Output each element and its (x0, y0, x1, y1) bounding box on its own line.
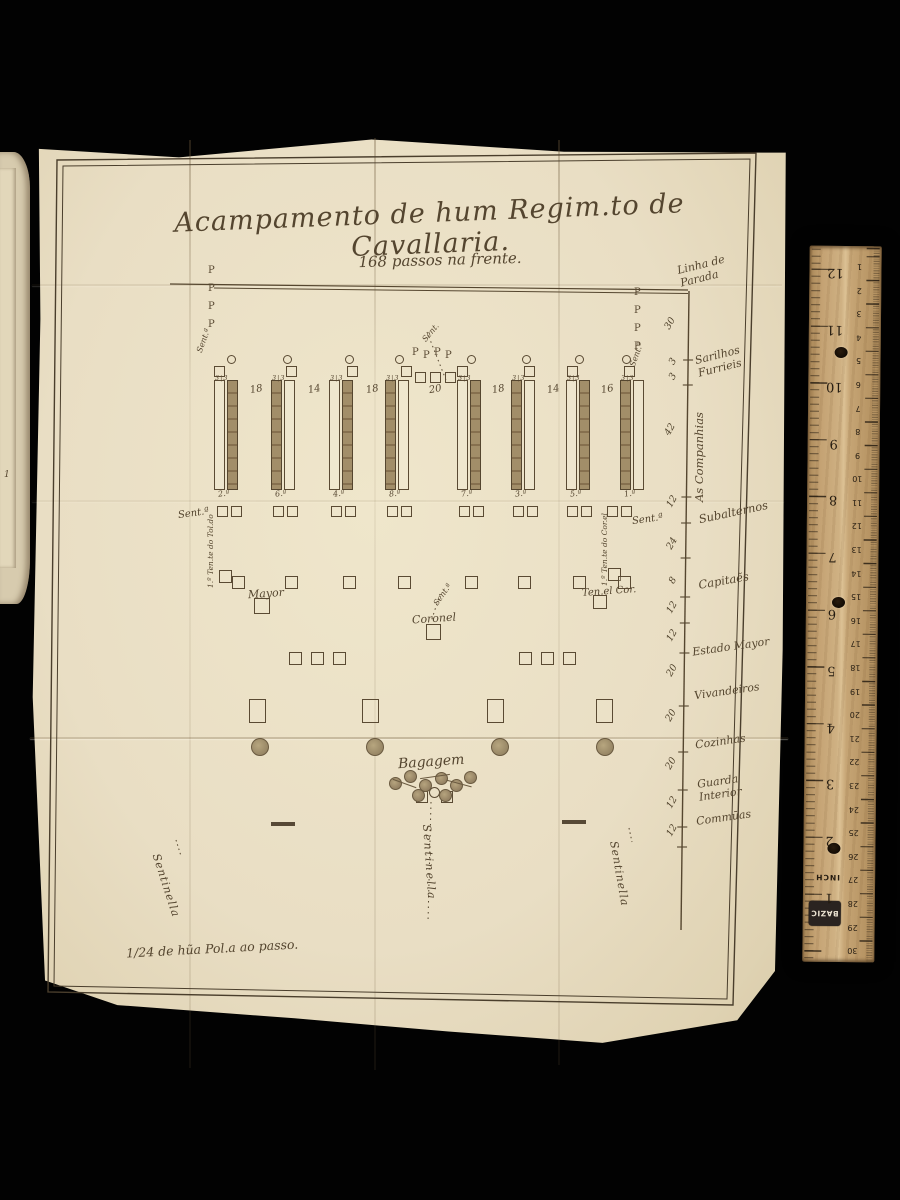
company-tent-line (284, 380, 295, 490)
ruler-cm-number: 26 (846, 852, 860, 861)
ruler-cm-number: 16 (849, 616, 863, 625)
picket-circle (283, 355, 292, 364)
picket-circle (575, 355, 584, 364)
ruler-inch-number: 3 (821, 776, 839, 791)
capitao-tent (398, 576, 411, 589)
ruler-cm-number: 12 (850, 522, 864, 531)
flag-picket-P: P (634, 323, 641, 334)
ruler-inch-number: 9 (825, 435, 843, 450)
picket-circle (522, 355, 531, 364)
cozinha-circle (596, 738, 614, 756)
ruler-inch-number: 5 (822, 663, 840, 678)
ruler-cm-number: 10 (850, 474, 864, 483)
ruler-cm-number: 25 (847, 828, 861, 837)
baggage-wagon (464, 771, 477, 784)
picket-circle (345, 355, 354, 364)
furriel-tent (401, 366, 412, 377)
furriel-tent (347, 366, 358, 377)
sarilho-mark: 3|3 (330, 374, 343, 382)
ruler-cm-number: 6 (851, 380, 865, 389)
furriel-tent (624, 366, 635, 377)
guarda-interior-post (562, 820, 586, 824)
picket-circle (467, 355, 476, 364)
vertical-fold (374, 138, 376, 1070)
ruler-inch-number: 7 (823, 549, 841, 564)
ruler-cm-number: 29 (846, 923, 860, 932)
subaltern-tent (513, 506, 524, 517)
company-tent-line (524, 380, 535, 490)
company-id: 3.ª (514, 488, 527, 499)
company-tent-line (633, 380, 644, 490)
ruler-cm-number: 18 (848, 663, 862, 672)
ruler-cm-number: 13 (850, 545, 864, 554)
front-width-number: 18 (365, 383, 379, 396)
front-width-number: 14 (307, 383, 321, 396)
picket-circle (227, 355, 236, 364)
baggage-wagon (439, 789, 452, 802)
front-width-number: 18 (491, 383, 505, 396)
capitao-tent (232, 576, 245, 589)
flag-picket-P: P (634, 287, 641, 298)
ruler-cm-number: 21 (848, 734, 862, 743)
subaltern-tent (459, 506, 470, 517)
company-horse-line (329, 380, 340, 490)
subaltern-tent (567, 506, 578, 517)
capitao-tent (518, 576, 531, 589)
company-id: 4.ª (332, 488, 345, 499)
company-id: 7.ª (460, 488, 473, 499)
wooden-ruler: INCH BAZIC 12345678910111212345678910111… (802, 246, 881, 963)
ruler-cm-number: 5 (851, 356, 865, 365)
flag-picket-P: P (208, 319, 215, 330)
subaltern-tent (473, 506, 484, 517)
book-page-edge-inner (0, 168, 16, 568)
mayor-tent (254, 598, 270, 614)
furriel-tent (457, 366, 468, 377)
company-horse-line (566, 380, 577, 490)
front-width-number: 20 (428, 383, 442, 396)
ruler-hole (835, 347, 848, 358)
company-horse-line (620, 380, 631, 490)
ruler-cm-number: 14 (849, 569, 863, 578)
ruler-inch-number: 10 (825, 379, 843, 394)
subaltern-tent (287, 506, 298, 517)
estado-mayor-tent (519, 652, 532, 665)
photograph-of-foldout-plate: 1 Acampamento de hum Regim.to de Cavalla… (0, 0, 900, 1200)
subaltern-tent (387, 506, 398, 517)
flag-picket-P: P (208, 301, 215, 312)
subaltern-tent (607, 506, 618, 517)
company-id: 8.ª (388, 488, 401, 499)
front-width-number: 18 (249, 383, 263, 396)
ruler-cm-number: 19 (848, 687, 862, 696)
company-tent-line (470, 380, 481, 490)
flag-picket-P: P (634, 341, 641, 352)
flag-picket-P: P (423, 350, 430, 361)
company-horse-line (214, 380, 225, 490)
vivandeiro-tent (249, 699, 266, 723)
furriel-tent (286, 366, 297, 377)
company-id: 1.ª (623, 488, 636, 499)
company-tent-line (398, 380, 409, 490)
ruler-cm-number: 27 (846, 875, 860, 884)
flag-picket-P: P (434, 347, 441, 358)
company-tent-line (227, 380, 238, 490)
left-officer-tent (219, 570, 232, 583)
vertical-fold (558, 140, 560, 1065)
ruler-cm-number: 3 (852, 309, 866, 318)
front-width-number: 16 (600, 383, 614, 396)
ruler-cm-number: 1 (852, 262, 866, 271)
company-horse-line (457, 380, 468, 490)
ruler-cm-number: 4 (852, 333, 866, 342)
ruler-inch-number: 12 (826, 265, 844, 280)
company-tent-line (579, 380, 590, 490)
subaltern-tent (345, 506, 356, 517)
sarilho-mark: 3|3 (386, 374, 399, 382)
vivandeiro-tent (362, 699, 379, 723)
ruler-cm-number: 20 (848, 710, 862, 719)
left-officer-label: 1.º Ten.te do Tol.do (206, 512, 215, 588)
ruler-inch-number: 8 (824, 492, 842, 507)
ruler-cm-number: 7 (851, 404, 865, 413)
estado-mayor-tent (563, 652, 576, 665)
company-horse-line (271, 380, 282, 490)
furriel-tent (214, 366, 225, 377)
baggage-wagon (404, 770, 417, 783)
cozinha-circle (366, 738, 384, 756)
ruler-cm-number: 2 (852, 286, 866, 295)
subaltern-tent (273, 506, 284, 517)
ruler-inch-unit-label: INCH (815, 873, 840, 882)
ruler-cm-number: 24 (847, 805, 861, 814)
capitao-tent (285, 576, 298, 589)
ruler-inch-number: 1 (820, 890, 838, 905)
ruler-cm-number: 17 (849, 640, 863, 649)
subaltern-tent (527, 506, 538, 517)
company-horse-line (511, 380, 522, 490)
cozinha-circle (251, 738, 269, 756)
ruler-cm-number: 9 (851, 451, 865, 460)
flag-picket-P: P (208, 283, 215, 294)
flag-picket-P: P (445, 350, 452, 361)
ruler-cm-number: 11 (850, 498, 864, 507)
horizontal-fold (30, 737, 788, 739)
coronel-tent (426, 624, 441, 640)
ruler-brand-text: BAZIC (811, 909, 839, 918)
company-horse-line (385, 380, 396, 490)
ruler-cm-number: 15 (849, 592, 863, 601)
ruler-inch-number: 2 (820, 833, 838, 848)
ruler-cm-number: 30 (845, 946, 859, 955)
ruler-inch-number: 6 (823, 606, 841, 621)
capitao-tent (343, 576, 356, 589)
estado-mayor-tent (311, 652, 324, 665)
ruler-inch-number: 4 (822, 719, 840, 734)
estado-mayor-tent (289, 652, 302, 665)
furriel-tent (524, 366, 535, 377)
subaltern-tent (581, 506, 592, 517)
company-tent-line (342, 380, 353, 490)
company-id: 6.ª (274, 488, 287, 499)
ruler-cm-number: 23 (847, 781, 861, 790)
subaltern-tent (401, 506, 412, 517)
estado-mayor-tent (541, 652, 554, 665)
furriel-tent (567, 366, 578, 377)
cozinha-circle (491, 738, 509, 756)
estado-mayor-tent (333, 652, 346, 665)
company-id: 2.ª (217, 488, 230, 499)
subaltern-tent (217, 506, 228, 517)
baggage-wagon (412, 789, 425, 802)
ruler-inch-number: 11 (826, 322, 844, 337)
scale-label: As Companhias (692, 394, 706, 502)
sarilho-mark: 3|3 (272, 374, 285, 382)
subaltern-tent (231, 506, 242, 517)
tenente-coronel-tent (593, 595, 607, 609)
picket-circle (622, 355, 631, 364)
page-edge-mark: 1 (4, 470, 10, 480)
vivandeiro-tent (596, 699, 613, 723)
flag-picket-P: P (412, 347, 419, 358)
standard-tent (415, 372, 426, 383)
subaltern-tent (331, 506, 342, 517)
capitao-tent (618, 576, 631, 589)
ruler-cm-number: 8 (851, 427, 865, 436)
standard-tent (445, 372, 456, 383)
flag-picket-P: P (208, 265, 215, 276)
flag-picket-P: P (634, 305, 641, 316)
vertical-fold (189, 140, 191, 1068)
guarda-interior-post (271, 822, 295, 826)
capitao-tent (465, 576, 478, 589)
ruler-cm-number: 28 (846, 899, 860, 908)
capitao-tent (573, 576, 586, 589)
vivandeiro-tent (487, 699, 504, 723)
ruler-cm-number: 22 (847, 757, 861, 766)
company-id: 5.ª (569, 488, 582, 499)
standard-tent (430, 372, 441, 383)
front-width-number: 14 (546, 383, 560, 396)
horizontal-fold (32, 284, 782, 286)
subaltern-tent (621, 506, 632, 517)
picket-circle (395, 355, 404, 364)
